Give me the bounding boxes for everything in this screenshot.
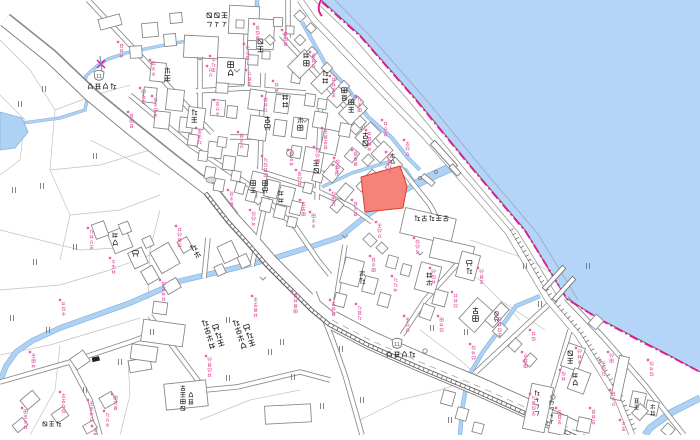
svg-text:11: 11 [96, 74, 102, 80]
svg-text:11: 11 [394, 342, 400, 348]
